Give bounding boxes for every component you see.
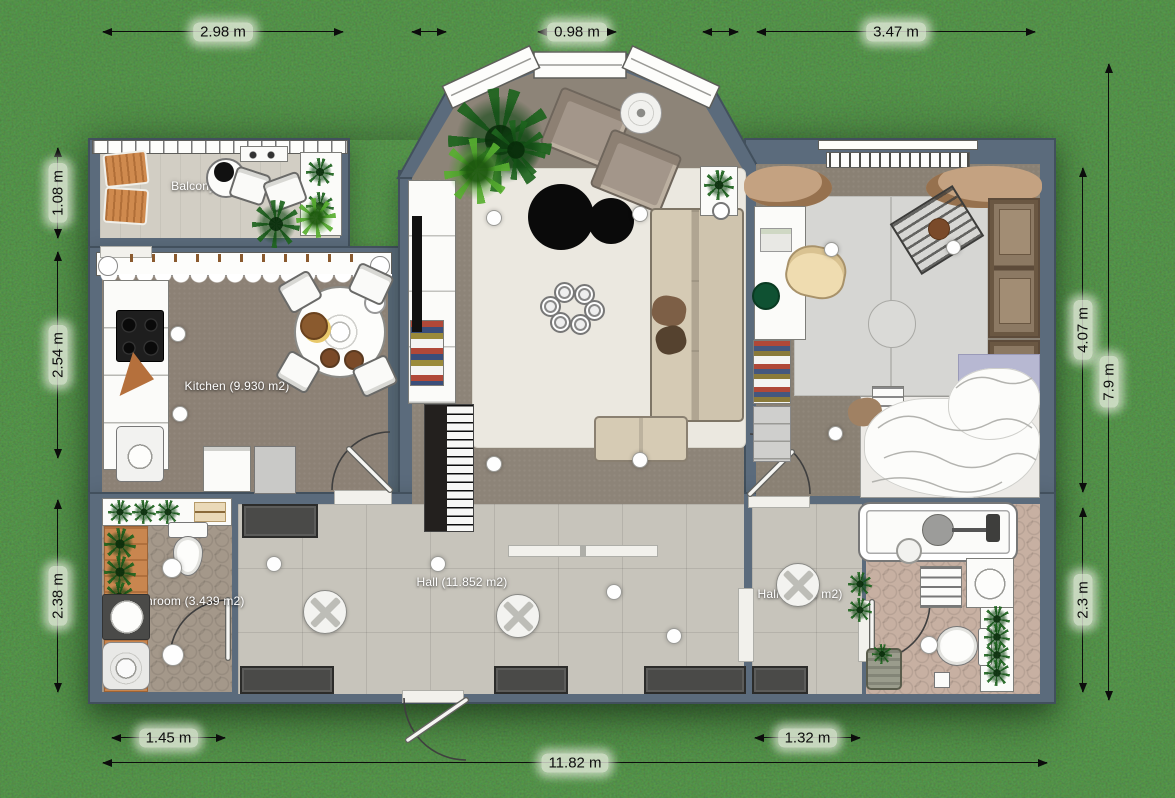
bedroom-hall2-doorway[interactable] bbox=[748, 496, 810, 508]
bathroom1-basin[interactable] bbox=[102, 594, 150, 640]
front-door-leaf[interactable] bbox=[408, 700, 466, 740]
hall-cabinet-top[interactable] bbox=[242, 504, 318, 538]
washing-machine[interactable] bbox=[102, 642, 150, 690]
bathroom1-light-1 bbox=[162, 558, 182, 578]
bathroom2-plant-4[interactable] bbox=[984, 660, 1010, 686]
living-light-2 bbox=[632, 206, 648, 222]
floor-lamp[interactable] bbox=[620, 92, 662, 134]
kitchen-hall-doorway[interactable] bbox=[334, 490, 392, 505]
bathroom2-light bbox=[920, 636, 938, 654]
bathroom1-shelf-box[interactable] bbox=[194, 502, 226, 522]
dining-bread-board[interactable] bbox=[300, 312, 328, 340]
dining-plate-2[interactable] bbox=[320, 348, 340, 368]
dim-label-right-3: 2.3 m bbox=[1074, 574, 1093, 626]
hall-ceiling-fan-1 bbox=[303, 590, 347, 634]
dim-top-bay-left bbox=[412, 31, 446, 32]
kitchen-cabinet-low[interactable] bbox=[254, 446, 296, 494]
bathroom1-shelf-plant-1[interactable] bbox=[108, 500, 132, 524]
bedroom-light-3 bbox=[828, 426, 843, 441]
bathroom1-light-2 bbox=[162, 644, 184, 666]
tv-screen[interactable] bbox=[412, 216, 422, 332]
dim-top-bay-center: 0.98 m bbox=[538, 31, 616, 32]
bay-window-center[interactable] bbox=[534, 52, 626, 78]
room-label-kitchen: Kitchen (9.930 m2) bbox=[185, 379, 290, 393]
balcony-lounger-1[interactable] bbox=[102, 150, 149, 188]
hall-light-2 bbox=[430, 556, 446, 572]
living-light-4 bbox=[632, 452, 648, 468]
dim-bottom-overall: 11.82 m bbox=[103, 762, 1047, 763]
hall-cabinet-bottom-2[interactable] bbox=[494, 666, 568, 694]
bedroom-window-sill[interactable] bbox=[818, 140, 978, 150]
hall-cabinet-bottom-3[interactable] bbox=[644, 666, 746, 694]
balcony-grill[interactable] bbox=[240, 146, 288, 162]
dim-left-balcony: 1.08 m bbox=[57, 148, 58, 238]
living-plant-bright[interactable] bbox=[444, 138, 510, 204]
hall-ceiling-fan-2 bbox=[496, 594, 540, 638]
dim-label-top-3: 3.47 m bbox=[866, 23, 926, 42]
hall-hall2-doorway[interactable] bbox=[738, 588, 754, 662]
piano[interactable] bbox=[424, 404, 474, 532]
hall2-ceiling-fan bbox=[776, 563, 820, 607]
living-light-1 bbox=[486, 210, 502, 226]
wardrobe-tall[interactable] bbox=[988, 198, 1040, 338]
hall-light-4 bbox=[666, 628, 682, 644]
bedroom-light-1 bbox=[824, 242, 839, 257]
front-door-arc bbox=[404, 698, 466, 760]
kitchen-sink[interactable] bbox=[116, 426, 164, 482]
dim-right-band: 2.3 m bbox=[1082, 508, 1083, 692]
hall2-cabinet-bottom[interactable] bbox=[752, 666, 808, 694]
dim-label-left-2: 2.54 m bbox=[49, 325, 68, 385]
table-ring-5 bbox=[570, 314, 591, 335]
dim-left-bathroom: 2.38 m bbox=[57, 500, 58, 692]
bathroom1-shelf-plant-3[interactable] bbox=[156, 500, 180, 524]
hall-light-1 bbox=[266, 556, 282, 572]
bedroom-rug-circle bbox=[868, 300, 916, 348]
dim-label-top-1: 2.98 m bbox=[193, 23, 253, 42]
balcony-plant-large[interactable] bbox=[252, 200, 300, 248]
desk-plant-pot[interactable] bbox=[752, 282, 780, 310]
towel-rack[interactable] bbox=[920, 566, 962, 608]
hall2-plant-2[interactable] bbox=[848, 598, 872, 622]
side-table-candle[interactable] bbox=[712, 202, 730, 220]
bedroom-light-2 bbox=[946, 240, 961, 255]
room-label-hall: Hall (11.852 m2) bbox=[416, 575, 507, 589]
dim-label-bottom-1: 1.45 m bbox=[139, 729, 199, 748]
side-table-plant[interactable] bbox=[704, 170, 734, 200]
dim-label-right-1: 4.07 m bbox=[1074, 300, 1093, 360]
bedroom-shelf-unit[interactable] bbox=[753, 406, 791, 462]
bathroom2-vanity[interactable] bbox=[966, 558, 1014, 608]
dim-label-bottom-3: 11.82 m bbox=[541, 754, 608, 773]
kitchen-ceiling-light-1 bbox=[170, 326, 186, 342]
dim-bottom-hall2: 1.32 m bbox=[755, 737, 860, 738]
hall-cabinet-bottom-1[interactable] bbox=[240, 666, 334, 694]
dim-label-left-1: 1.08 m bbox=[49, 163, 68, 223]
table-ring-6 bbox=[550, 312, 571, 333]
dim-label-top-2: 0.98 m bbox=[547, 23, 607, 42]
beanbag-small[interactable] bbox=[588, 198, 634, 244]
dim-top-balcony: 2.98 m bbox=[103, 31, 343, 32]
hall2-plant-1[interactable] bbox=[848, 572, 872, 596]
wardrobe-panel-2 bbox=[999, 278, 1031, 324]
balcony-kettle[interactable] bbox=[214, 162, 234, 182]
kitchen-curtain-hooks bbox=[130, 254, 370, 262]
kitchen-ceiling-light-2 bbox=[172, 406, 188, 422]
front-door-threshold[interactable] bbox=[402, 690, 464, 703]
bedroom-bookshelf[interactable] bbox=[753, 340, 791, 404]
hall-light-3 bbox=[606, 584, 622, 600]
dim-top-bay-right bbox=[703, 31, 738, 32]
bedroom-radiator[interactable] bbox=[826, 152, 970, 168]
laundry-basket-plant[interactable] bbox=[872, 644, 892, 664]
floor-plan-scene: Balcony (3.218 m2) Kitchen (9.930 m2) Ha… bbox=[0, 0, 1175, 798]
dim-label-left-3: 2.38 m bbox=[49, 566, 68, 626]
bedroom-curtain-left[interactable] bbox=[744, 166, 832, 208]
dim-label-bottom-2: 1.32 m bbox=[778, 729, 838, 748]
shower-head[interactable] bbox=[922, 514, 954, 546]
bathroom1-shelf-plant-2[interactable] bbox=[132, 500, 156, 524]
beanbag-large[interactable] bbox=[528, 184, 594, 250]
living-light-3 bbox=[486, 456, 502, 472]
wardrobe-panel-1 bbox=[999, 209, 1031, 255]
table-ring-2 bbox=[554, 282, 575, 303]
dim-right-bedroom: 4.07 m bbox=[1082, 168, 1083, 492]
dim-top-bedroom: 3.47 m bbox=[757, 31, 1035, 32]
living-hall-opening[interactable] bbox=[508, 545, 658, 557]
kitchen-dishwasher[interactable] bbox=[203, 446, 251, 492]
coffee-table-set[interactable] bbox=[540, 282, 602, 336]
balcony-plant-1[interactable] bbox=[306, 158, 334, 186]
tub-drain bbox=[896, 538, 922, 564]
toilet2-bowl[interactable] bbox=[936, 626, 978, 666]
shower-bracket bbox=[986, 514, 1000, 542]
dim-right-overall: 7.9 m bbox=[1108, 64, 1109, 700]
curtain-rod-end-left bbox=[98, 256, 118, 276]
kitchen-cooktop[interactable] bbox=[116, 310, 164, 362]
dim-left-kitchen: 2.54 m bbox=[57, 252, 58, 458]
dim-bottom-bathroom: 1.45 m bbox=[112, 737, 225, 738]
teddy-bear[interactable] bbox=[928, 218, 950, 240]
balcony-plant-bright[interactable] bbox=[296, 198, 336, 238]
bathroom2-stool[interactable] bbox=[934, 672, 950, 688]
shower-hose bbox=[952, 528, 990, 532]
dim-label-right-2: 7.9 m bbox=[1100, 356, 1119, 408]
desk-laptop[interactable] bbox=[760, 228, 792, 252]
balcony-lounger-2[interactable] bbox=[103, 187, 149, 226]
